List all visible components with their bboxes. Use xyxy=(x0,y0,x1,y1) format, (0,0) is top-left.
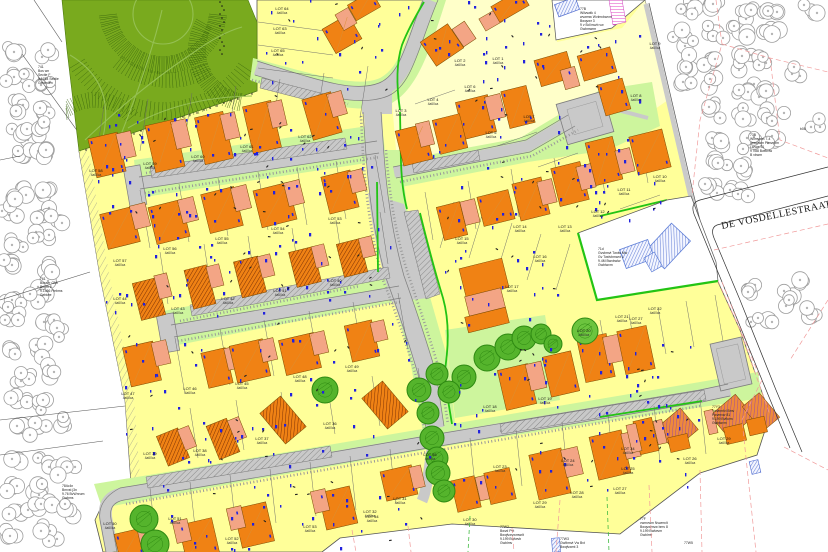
svg-text:4a60ca: 4a60ca xyxy=(395,501,406,505)
svg-text:4a60ca: 4a60ca xyxy=(563,463,574,467)
svg-text:4a60ca: 4a60ca xyxy=(273,53,284,57)
svg-text:4a60ca: 4a60ca xyxy=(295,379,306,383)
svg-text:4a60ca: 4a60ca xyxy=(277,11,288,15)
svg-text:4a60ca: 4a60ca xyxy=(615,491,626,495)
svg-text:4a60ca: 4a60ca xyxy=(185,391,196,395)
svg-text:4a60ca: 4a60ca xyxy=(457,241,468,245)
svg-text:4a60ca: 4a60ca xyxy=(455,63,466,67)
svg-text:Gwbmwrm: Gwbmwrm xyxy=(580,27,596,31)
svg-text:4a60ca: 4a60ca xyxy=(257,441,268,445)
svg-text:4a60ca: 4a60ca xyxy=(623,451,634,455)
svg-text:4a60ca: 4a60ca xyxy=(485,409,496,413)
svg-text:4a60ca: 4a60ca xyxy=(623,471,634,475)
svg-text:4a60ca: 4a60ca xyxy=(275,293,286,297)
svg-text:4a60ca: 4a60ca xyxy=(367,519,378,523)
svg-text:4a60ca: 4a60ca xyxy=(365,514,376,518)
svg-text:4a60ca: 4a60ca xyxy=(524,119,535,123)
svg-text:4a60ca: 4a60ca xyxy=(275,31,286,35)
svg-text:Bwqfvwmt 3: Bwqfvwmt 3 xyxy=(560,545,578,549)
svg-text:4a60ca: 4a60ca xyxy=(170,521,181,525)
svg-text:4a60ca: 4a60ca xyxy=(465,89,476,93)
svg-text:Gebieden: Gebieden xyxy=(38,81,53,85)
svg-text:4a60ca: 4a60ca xyxy=(425,457,436,461)
svg-text:4a60ca: 4a60ca xyxy=(173,311,184,315)
svg-text:4a60ca: 4a60ca xyxy=(535,505,546,509)
svg-text:4a60ca: 4a60ca xyxy=(325,426,336,430)
svg-text:4a60ca: 4a60ca xyxy=(685,461,696,465)
svg-text:4a60ca: 4a60ca xyxy=(579,333,590,337)
svg-text:Gebiwe: Gebiwe xyxy=(40,293,52,297)
svg-text:4a60ca: 4a60ca xyxy=(465,522,476,526)
svg-text:4a60ca: 4a60ca xyxy=(593,214,604,218)
svg-text:4a60ca: 4a60ca xyxy=(145,456,156,460)
svg-text:4a60ca: 4a60ca xyxy=(428,102,439,106)
svg-text:4a60ca: 4a60ca xyxy=(540,401,551,405)
svg-text:4a60ca: 4a60ca xyxy=(300,139,311,143)
svg-text:Gwblwvm: Gwblwvm xyxy=(598,263,613,267)
svg-text:4a60ca: 4a60ca xyxy=(165,251,176,255)
svg-text:4a60ca: 4a60ca xyxy=(486,135,497,139)
svg-text:Gwbms: Gwbms xyxy=(62,496,74,500)
svg-text:Gwblmv: Gwblmv xyxy=(500,541,513,545)
svg-text:4a60ca: 4a60ca xyxy=(493,61,504,65)
svg-text:4a60ca: 4a60ca xyxy=(145,166,156,170)
svg-text:4a60ca: 4a60ca xyxy=(515,229,526,233)
svg-text:Gwblmv: Gwblmv xyxy=(640,533,653,537)
svg-text:4a60ca: 4a60ca xyxy=(347,369,358,373)
svg-text:B vbwm: B vbwm xyxy=(750,153,762,157)
svg-text:4a60ca: 4a60ca xyxy=(655,179,666,183)
svg-text:4a60ca: 4a60ca xyxy=(535,259,546,263)
svg-text:4a60ca: 4a60ca xyxy=(560,229,571,233)
svg-text:4a60ca: 4a60ca xyxy=(495,469,506,473)
svg-text:4a60ca: 4a60ca xyxy=(650,311,661,315)
svg-text:4a60ca: 4a60ca xyxy=(719,441,730,445)
svg-text:4a60ca: 4a60ca xyxy=(330,221,341,225)
svg-text:4a60ca: 4a60ca xyxy=(572,495,583,499)
svg-text:4a60ca: 4a60ca xyxy=(507,289,518,293)
svg-text:4a60ca: 4a60ca xyxy=(631,321,642,325)
svg-text:b08: b08 xyxy=(800,127,806,131)
svg-text:4a60ca: 4a60ca xyxy=(227,541,238,545)
svg-text:4a60ca: 4a60ca xyxy=(115,263,126,267)
svg-text:4a60ca: 4a60ca xyxy=(330,283,341,287)
svg-text:77W5: 77W5 xyxy=(684,541,693,545)
svg-text:Gwblwvm: Gwblwvm xyxy=(712,421,727,425)
svg-text:4a60ca: 4a60ca xyxy=(631,98,642,102)
svg-text:4a60ca: 4a60ca xyxy=(305,529,316,533)
svg-text:4a60ca: 4a60ca xyxy=(242,149,253,153)
svg-text:4a60ca: 4a60ca xyxy=(91,173,102,177)
svg-text:4a60ca: 4a60ca xyxy=(193,159,204,163)
svg-text:4a60ca: 4a60ca xyxy=(115,301,126,305)
svg-text:4a60ca: 4a60ca xyxy=(619,192,630,196)
svg-text:4a60ca: 4a60ca xyxy=(105,526,116,530)
svg-text:4a60ca: 4a60ca xyxy=(195,453,206,457)
svg-text:4a60ca: 4a60ca xyxy=(123,396,134,400)
svg-text:4a60ca: 4a60ca xyxy=(237,386,248,390)
svg-text:4a60ca: 4a60ca xyxy=(217,241,228,245)
svg-text:4a60ca: 4a60ca xyxy=(223,301,234,305)
svg-text:4a60ca: 4a60ca xyxy=(650,46,661,50)
svg-text:4a60ca: 4a60ca xyxy=(617,319,628,323)
svg-text:4a60ca: 4a60ca xyxy=(273,231,284,235)
svg-text:4a60ca: 4a60ca xyxy=(396,113,407,117)
